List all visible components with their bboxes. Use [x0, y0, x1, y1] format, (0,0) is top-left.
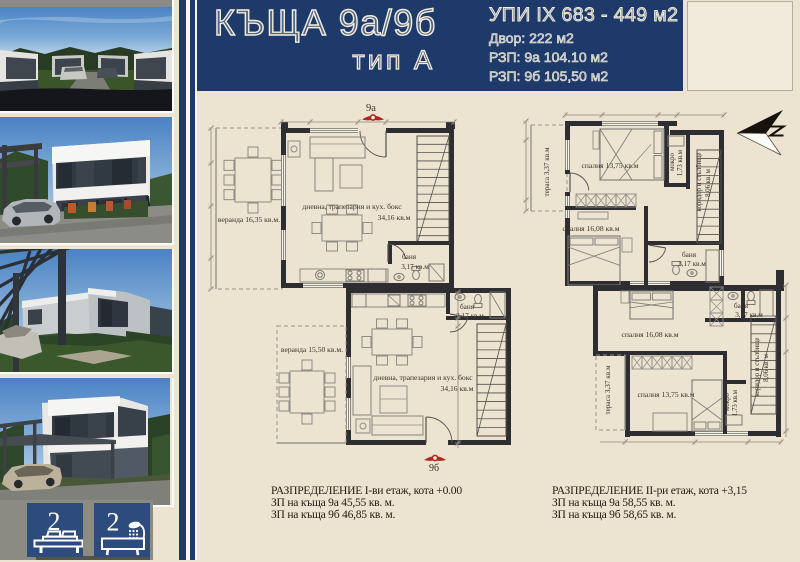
svg-text:веранда 16,35 кв.м.: веранда 16,35 кв.м. [218, 215, 280, 224]
svg-text:баня: баня [734, 302, 749, 310]
svg-text:34,16 кв.м: 34,16 кв.м [441, 384, 474, 393]
svg-text:3,17 кв.м: 3,17 кв.м [678, 260, 706, 268]
svg-text:тераса 3,37 кв.м: тераса 3,37 кв.м [543, 147, 551, 196]
svg-text:8,06 кв. м: 8,06 кв. м [763, 353, 770, 382]
svg-text:3,17 кв.м: 3,17 кв.м [735, 311, 763, 319]
svg-text:9б: 9б [429, 463, 439, 474]
svg-text:баня: баня [460, 303, 475, 311]
svg-text:тераса 3,37 кв.м: тераса 3,37 кв.м [604, 365, 612, 414]
svg-text:спалня 16,08 кв.м: спалня 16,08 кв.м [621, 330, 678, 339]
svg-text:спалня 16,08 кв.м: спалня 16,08 кв.м [562, 224, 619, 233]
svg-text:баня: баня [402, 253, 417, 261]
svg-text:баня: баня [682, 251, 697, 259]
svg-text:спалня 13,75 кв.м: спалня 13,75 кв.м [581, 161, 638, 170]
svg-text:мокро: мокро [724, 393, 731, 411]
svg-text:спалня 13,75 кв.м: спалня 13,75 кв.м [637, 390, 694, 399]
svg-text:34,16 кв.м: 34,16 кв.м [378, 213, 411, 222]
svg-text:мокро: мокро [669, 153, 676, 171]
svg-text:дневна, трапезария и кух. бокс: дневна, трапезария и кух. бокс [302, 202, 402, 211]
svg-text:1,73 кв.м: 1,73 кв.м [732, 389, 739, 416]
svg-text:1,73 кв.м: 1,73 кв.м [677, 149, 684, 176]
svg-text:9а: 9а [366, 103, 376, 114]
svg-text:веранда 15,50 кв.м.: веранда 15,50 кв.м. [281, 345, 343, 354]
svg-text:3,17 кв.м: 3,17 кв.м [401, 263, 429, 271]
